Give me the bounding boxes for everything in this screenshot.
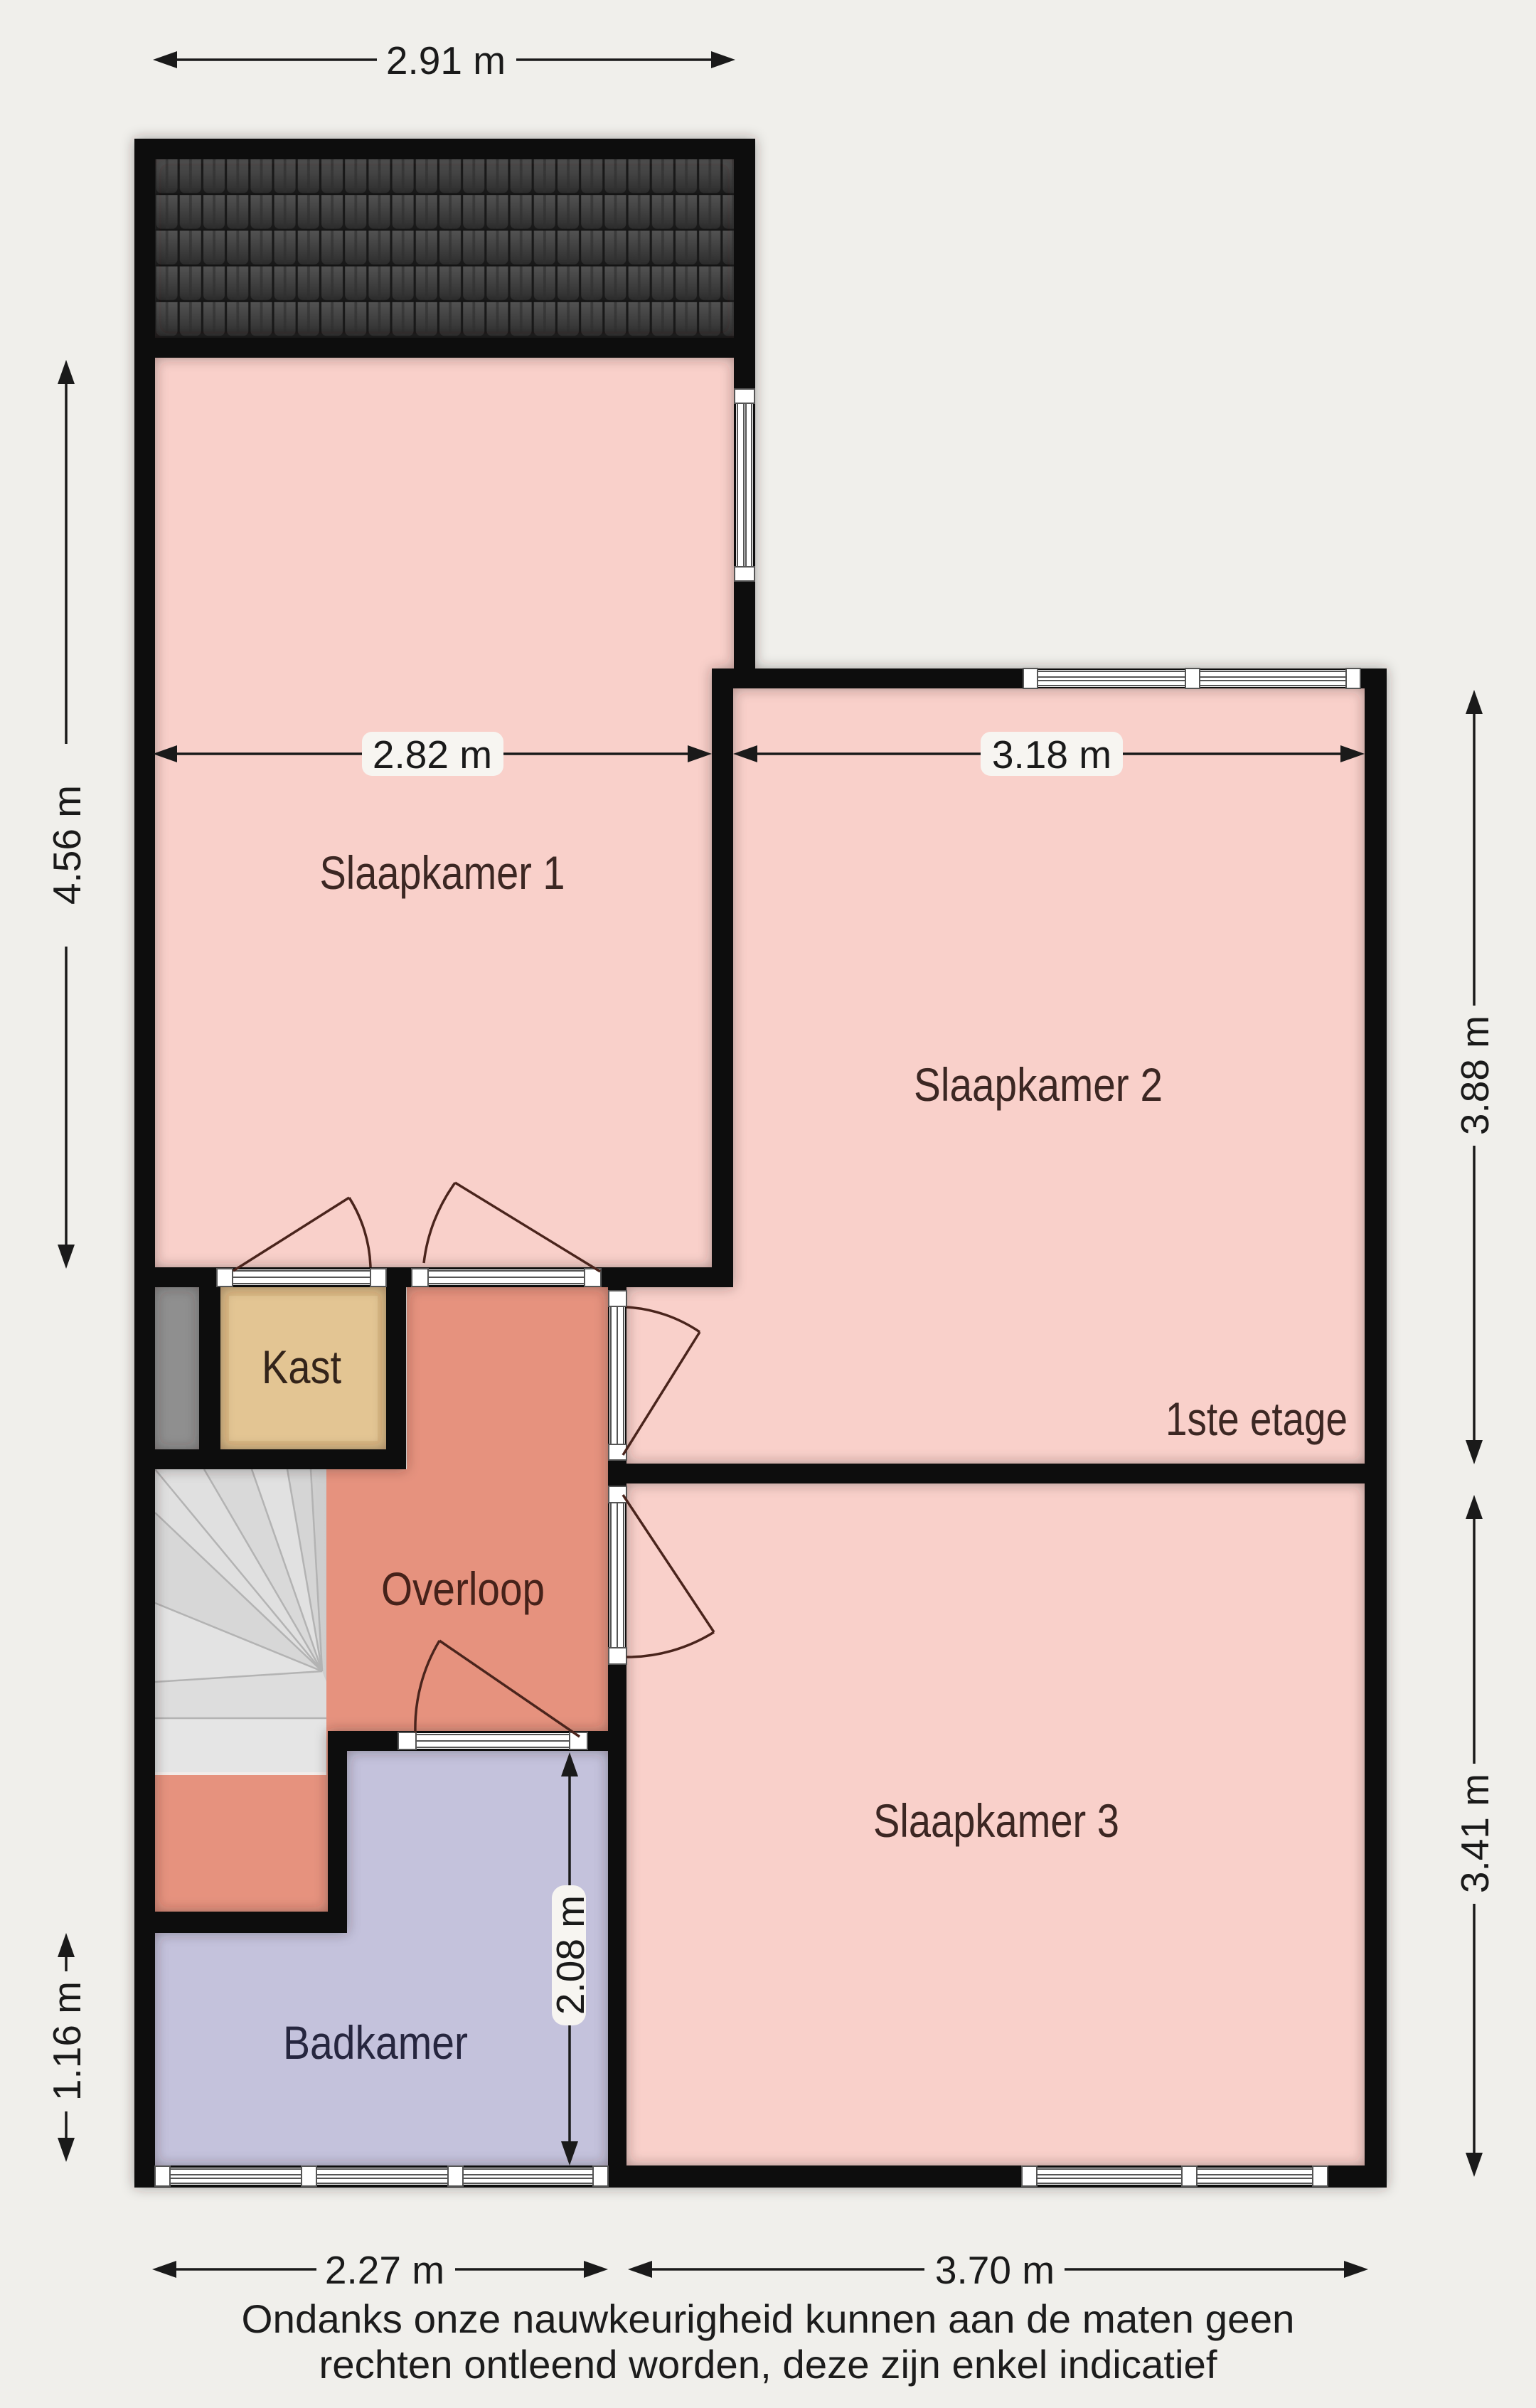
- svg-text:3.70 m: 3.70 m: [935, 2248, 1055, 2292]
- svg-text:rechten ontleend worden, deze: rechten ontleend worden, deze zijn enkel…: [319, 2342, 1217, 2387]
- svg-text:2.82 m: 2.82 m: [373, 732, 492, 777]
- svg-text:3.88 m: 3.88 m: [1453, 1016, 1497, 1135]
- svg-text:1ste etage: 1ste etage: [1166, 1392, 1348, 1445]
- svg-text:3.41 m: 3.41 m: [1453, 1774, 1497, 1893]
- svg-text:Slaapkamer 2: Slaapkamer 2: [914, 1058, 1163, 1111]
- svg-text:Overloop: Overloop: [381, 1562, 545, 1615]
- svg-text:4.56 m: 4.56 m: [45, 785, 89, 905]
- svg-text:2.91 m: 2.91 m: [386, 38, 506, 82]
- svg-text:Badkamer: Badkamer: [283, 2016, 468, 2069]
- svg-text:1.16 m: 1.16 m: [45, 1981, 89, 2101]
- svg-text:2.08 m: 2.08 m: [548, 1895, 592, 2015]
- svg-text:3.18 m: 3.18 m: [992, 732, 1111, 777]
- svg-text:Ondanks onze nauwkeurigheid ku: Ondanks onze nauwkeurigheid kunnen aan d…: [242, 2296, 1295, 2341]
- svg-text:2.27 m: 2.27 m: [325, 2248, 444, 2292]
- svg-text:Slaapkamer 1: Slaapkamer 1: [320, 846, 565, 899]
- svg-text:Kast: Kast: [262, 1341, 341, 1393]
- svg-text:Slaapkamer 3: Slaapkamer 3: [873, 1794, 1119, 1847]
